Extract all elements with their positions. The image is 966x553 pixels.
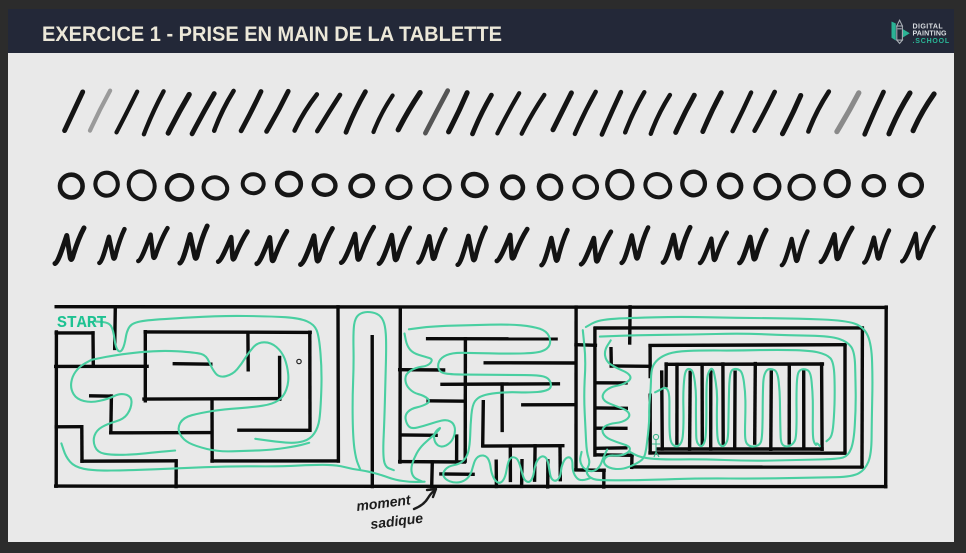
- svg-text:START: START: [57, 313, 107, 332]
- svg-text:moment: moment: [355, 491, 412, 514]
- svg-text:sadique: sadique: [369, 510, 424, 532]
